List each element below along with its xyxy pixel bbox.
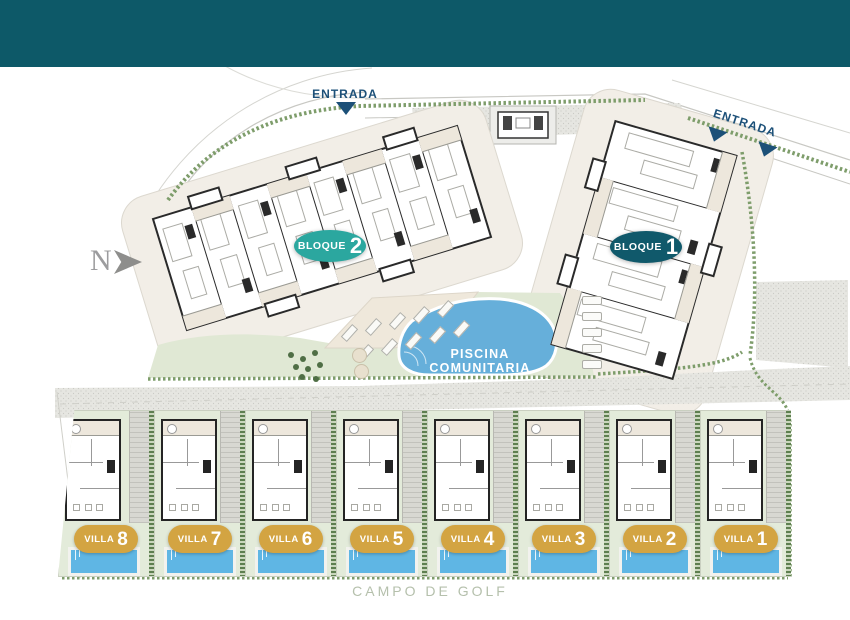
furniture: [272, 504, 279, 511]
stair-block: [658, 460, 666, 473]
villa-label: VILLA: [542, 534, 572, 545]
skylight: [258, 424, 268, 434]
unit-detail: [182, 266, 207, 299]
sun-lounger: [429, 326, 446, 344]
skylight: [440, 424, 450, 434]
sun-lounger: [413, 306, 430, 324]
tree: [293, 364, 299, 370]
side-road: [756, 280, 848, 368]
wall-line: [449, 488, 488, 489]
furniture: [465, 504, 472, 511]
villa-roof-terrace: [163, 421, 215, 436]
north-arrow-icon: [114, 250, 142, 274]
stair-block: [107, 460, 115, 473]
pool-step: [79, 550, 80, 557]
villa-driveway: [493, 411, 513, 523]
tree: [300, 356, 306, 362]
furniture: [533, 504, 540, 511]
wall-line: [631, 488, 670, 489]
unit-detail: [686, 239, 698, 255]
furniture: [647, 504, 654, 511]
furniture: [73, 504, 80, 511]
unit-detail: [242, 277, 254, 293]
villa-label: VILLA: [178, 534, 208, 545]
villa-floorplan: [161, 419, 217, 521]
wall-line: [369, 439, 370, 466]
wall-line: [176, 488, 215, 489]
villa-floorplan: [252, 419, 308, 521]
bloque-1-label: BLOQUE: [614, 241, 662, 253]
furniture: [727, 504, 734, 511]
villa-badge[interactable]: VILLA 8: [74, 525, 138, 553]
unit-detail: [655, 350, 667, 366]
villa-plot-2: VILLA 2: [609, 410, 700, 577]
villa-driveway: [129, 411, 149, 523]
skylight: [622, 424, 632, 434]
villa-roof-terrace: [709, 421, 761, 436]
unit-detail: [220, 254, 245, 287]
pool-step: [262, 550, 263, 560]
unit-detail: [409, 196, 434, 229]
pool-step: [353, 550, 354, 560]
stair-block: [567, 460, 575, 473]
furniture: [556, 504, 563, 511]
north-compass: N: [90, 244, 160, 284]
unit-detail: [258, 243, 283, 276]
furniture: [192, 504, 199, 511]
villa-plot-1: VILLA 1: [700, 410, 791, 577]
skylight: [71, 424, 81, 434]
sun-lounger: [381, 338, 398, 356]
entrance-label-1: ENTRADA: [300, 87, 390, 101]
pool-step: [626, 550, 627, 560]
palm-tree: [354, 364, 369, 379]
parked-car: [582, 360, 602, 369]
villa-badge[interactable]: VILLA 1: [714, 525, 778, 553]
villa-badge[interactable]: VILLA 2: [623, 525, 687, 553]
villa-badge[interactable]: VILLA 4: [441, 525, 505, 553]
villa-badge[interactable]: VILLA 5: [350, 525, 414, 553]
stair-block: [749, 460, 757, 473]
palm-tree: [352, 348, 367, 363]
wall-line: [460, 439, 461, 466]
villa-plot-5: VILLA 5: [336, 410, 427, 577]
villa-badge[interactable]: VILLA 7: [168, 525, 232, 553]
wall-line: [642, 439, 643, 466]
hedge-strip: [786, 411, 791, 576]
skylight: [531, 424, 541, 434]
wall-line: [345, 462, 381, 463]
furniture: [363, 504, 370, 511]
furniture: [260, 504, 267, 511]
villa-floorplan: [707, 419, 763, 521]
villa-driveway: [220, 411, 240, 523]
unit-detail: [447, 185, 472, 218]
wall-line: [67, 462, 103, 463]
tree: [312, 350, 318, 356]
furniture: [715, 504, 722, 511]
stair-block: [203, 460, 211, 473]
villa-badge[interactable]: VILLA 3: [532, 525, 596, 553]
furniture: [351, 504, 358, 511]
tree: [299, 374, 305, 380]
furniture: [636, 504, 643, 511]
tree: [305, 366, 311, 372]
parked-car: [582, 312, 602, 321]
unit-detail: [371, 208, 396, 241]
entrance-arrow-icon: [336, 102, 356, 115]
pavilion-detail: [503, 116, 512, 130]
villa-floorplan: [616, 419, 672, 521]
wall-line: [527, 462, 563, 463]
pool-step: [717, 550, 718, 560]
site-plan: N ENTRADA ENTRADA BLOQUE 2 BLOQUE 1 PISC…: [0, 0, 850, 620]
header-bar: [0, 0, 850, 67]
villa-number: 5: [393, 530, 404, 549]
bloque-1-number: 1: [666, 236, 678, 258]
villa-number: 8: [117, 530, 128, 549]
villa-floorplan: [434, 419, 490, 521]
bloque-2-badge[interactable]: BLOQUE 2: [294, 230, 366, 262]
villa-label: VILLA: [360, 534, 390, 545]
villa-driveway: [311, 411, 331, 523]
wall-line: [722, 488, 761, 489]
villa-driveway: [584, 411, 604, 523]
stair-block: [385, 460, 393, 473]
villa-label: VILLA: [84, 534, 114, 545]
villas-row: VILLA 8 VILLA 7: [58, 410, 793, 577]
villa-label: VILLA: [633, 534, 663, 545]
villa-driveway: [402, 411, 422, 523]
sun-lounger: [389, 312, 406, 330]
villa-number: 3: [575, 530, 586, 549]
wall-line: [278, 439, 279, 466]
wall-line: [733, 439, 734, 466]
wall-line: [254, 462, 290, 463]
golf-course-label: CAMPO DE GOLF: [250, 583, 610, 599]
villa-roof-terrace: [254, 421, 306, 436]
wall-line: [358, 488, 397, 489]
wall-line: [187, 439, 188, 466]
wall-line: [618, 462, 654, 463]
furniture: [374, 504, 381, 511]
tree: [288, 352, 294, 358]
tree-cluster: [288, 350, 338, 384]
furniture: [96, 504, 103, 511]
furniture: [738, 504, 745, 511]
wall-line: [540, 488, 579, 489]
villa-driveway: [675, 411, 695, 523]
villa-roof-terrace: [436, 421, 488, 436]
furniture: [169, 504, 176, 511]
villa-number: 2: [666, 530, 677, 549]
wall-line: [163, 462, 199, 463]
tree: [317, 362, 323, 368]
villa-floorplan: [525, 419, 581, 521]
villa-badge[interactable]: VILLA 6: [259, 525, 323, 553]
stair-block: [476, 460, 484, 473]
villa-label: VILLA: [451, 534, 481, 545]
furniture: [283, 504, 290, 511]
sun-lounger: [365, 318, 382, 336]
villa-roof-terrace: [527, 421, 579, 436]
villa-driveway: [766, 411, 786, 523]
villa-plot-8: VILLA 8: [58, 410, 154, 577]
pool-step: [75, 550, 76, 560]
villa-roof-terrace: [67, 421, 119, 436]
furniture: [454, 504, 461, 511]
furniture: [85, 504, 92, 511]
villa-roof-terrace: [345, 421, 397, 436]
skylight: [349, 424, 359, 434]
wall-line: [91, 439, 92, 466]
villa-plot-3: VILLA 3: [518, 410, 609, 577]
unit-detail: [394, 231, 406, 247]
villa-number: 7: [211, 530, 222, 549]
pool-step: [444, 550, 445, 560]
pavilion-detail: [534, 116, 543, 130]
wall-line: [709, 462, 745, 463]
bloque-1-badge[interactable]: BLOQUE 1: [610, 231, 682, 263]
wall-line: [551, 439, 552, 466]
stair-block: [294, 460, 302, 473]
unit-detail: [469, 208, 481, 224]
parked-car: [582, 344, 602, 353]
bloque-2-label: BLOQUE: [298, 240, 346, 252]
skylight: [167, 424, 177, 434]
skylight: [713, 424, 723, 434]
villa-number: 1: [757, 530, 768, 549]
tree: [313, 376, 319, 382]
villa-floorplan: [343, 419, 399, 521]
villa-number: 6: [302, 530, 313, 549]
furniture: [545, 504, 552, 511]
furniture: [181, 504, 188, 511]
parked-car: [582, 328, 602, 337]
wall-line: [267, 488, 306, 489]
bloque-2-number: 2: [350, 235, 362, 257]
sun-lounger: [437, 300, 454, 318]
pool-step: [171, 550, 172, 560]
villa-label: VILLA: [724, 534, 754, 545]
wall-line: [80, 488, 119, 489]
wall-line: [436, 462, 472, 463]
villa-floorplan: [65, 419, 121, 521]
villa-plot-4: VILLA 4: [427, 410, 518, 577]
furniture: [442, 504, 449, 511]
sun-lounger: [341, 324, 358, 342]
villa-plot-7: VILLA 7: [154, 410, 245, 577]
north-label: N: [90, 246, 112, 276]
furniture: [624, 504, 631, 511]
parked-cars: [580, 296, 610, 386]
villa-label: VILLA: [269, 534, 299, 545]
parked-car: [582, 296, 602, 305]
villa-roof-terrace: [618, 421, 670, 436]
hedge: [148, 377, 596, 379]
pool-step: [535, 550, 536, 560]
sun-lounger: [453, 320, 470, 338]
community-pool-label: PISCINA COMUNITARIA: [400, 347, 560, 375]
villa-plot-6: VILLA 6: [245, 410, 336, 577]
villa-number: 4: [484, 530, 495, 549]
